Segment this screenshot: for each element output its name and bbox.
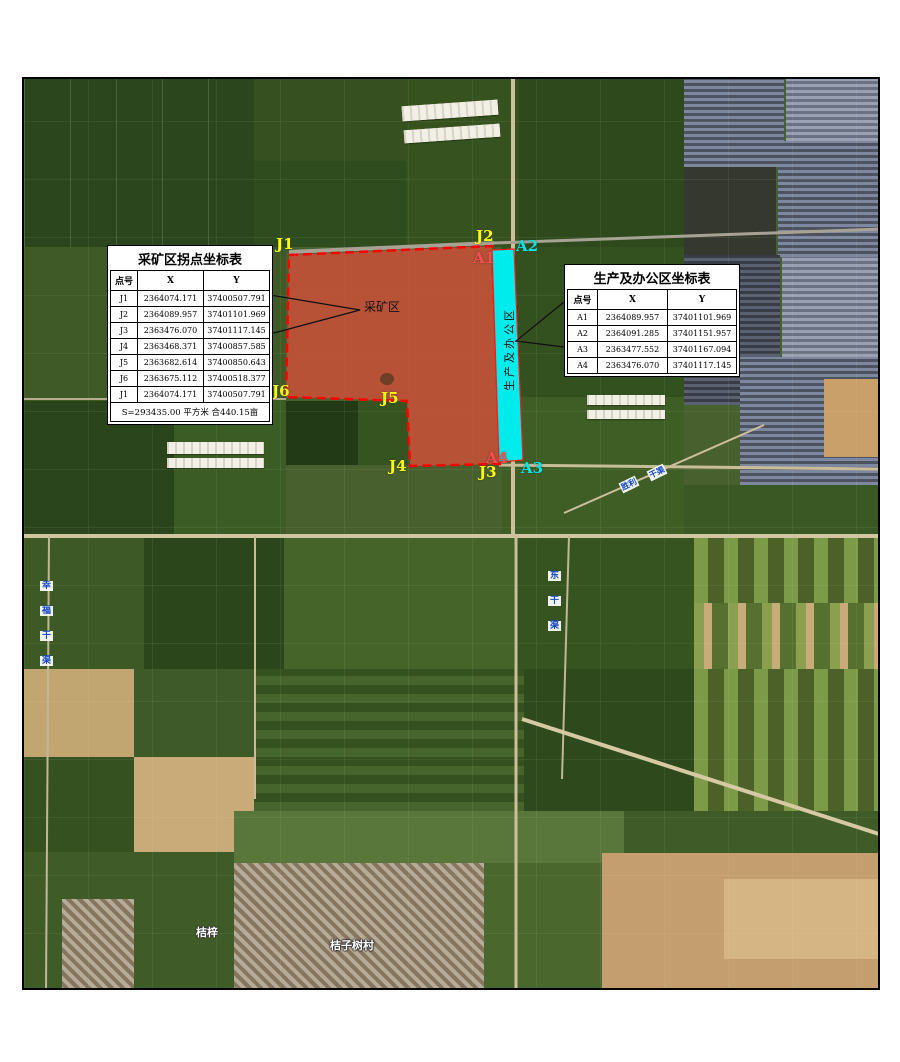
vertex-label-a1: A1 — [473, 251, 495, 266]
canal-label-west: 幸 福 干 渠 — [40, 581, 53, 681]
table-row: J32363476.07037401117.145 — [111, 323, 270, 339]
table-row: J62363675.11237400518.377 — [111, 371, 270, 387]
road-diagonal-south — [522, 719, 880, 835]
table-row: A22364091.28537401151.957 — [568, 326, 737, 342]
map-document-page: J1 J2 A2 A1 J6 J5 J4 J3 A4 A3 采矿区 生产及办公区… — [0, 0, 900, 1062]
coordinates-grid: 点号XY J12364074.17137400507.791J22364089.… — [110, 270, 270, 422]
vertex-label-j6: J6 — [272, 384, 290, 399]
table-cell: A1 — [568, 310, 598, 326]
office-coordinates-table: 生产及办公区坐标表 点号XY A12364089.95737401101.969… — [564, 264, 740, 377]
vertex-label-a4: A4 — [486, 451, 508, 466]
table-cell: 37400857.585 — [204, 339, 270, 355]
table-cell: 2364074.171 — [138, 291, 204, 307]
leader-line-office — [516, 302, 564, 347]
vertex-label-j3: J3 — [479, 465, 497, 480]
canal-label-char: 渠 — [548, 621, 561, 631]
vertex-label-j2: J2 — [476, 229, 494, 244]
table-cell: 37401167.094 — [668, 342, 737, 358]
table-row: A42363476.07037401117.145 — [568, 358, 737, 374]
table-cell: 37400507.791 — [204, 387, 270, 403]
table-row: J42363468.37137400857.585 — [111, 339, 270, 355]
table-row: J52363682.61437400850.643 — [111, 355, 270, 371]
column-header: Y — [668, 290, 737, 310]
canal-mid — [562, 536, 569, 779]
office-strip-label: 生产及办公区 — [501, 307, 517, 391]
table-cell: 37401117.145 — [668, 358, 737, 374]
canal-label-mid: 东 干 渠 — [548, 571, 561, 646]
table-row: J12364074.17137400507.791 — [111, 387, 270, 403]
table-cell: 2363468.371 — [138, 339, 204, 355]
table-cell: 2363476.070 — [138, 323, 204, 339]
table-cell: 37400850.643 — [204, 355, 270, 371]
table-row: A12364089.95737401101.969 — [568, 310, 737, 326]
vertex-label-a3: A3 — [521, 461, 543, 476]
table-title: 采矿区拐点坐标表 — [110, 247, 270, 270]
canal-label-char: 福 — [40, 606, 53, 616]
table-cell: 2363477.552 — [598, 342, 668, 358]
table-cell: 2364089.957 — [598, 310, 668, 326]
table-cell: J2 — [111, 307, 138, 323]
coordinates-grid: 点号XY A12364089.95737401101.969A22364091.… — [567, 289, 737, 374]
column-header: X — [598, 290, 668, 310]
table-cell: 37400518.377 — [204, 371, 270, 387]
header-row: 点号XY — [568, 290, 737, 310]
table-cell: J4 — [111, 339, 138, 355]
village-label-east: 桔子树村 — [330, 937, 374, 953]
table-cell: J6 — [111, 371, 138, 387]
table-cell: J1 — [111, 387, 138, 403]
column-header: X — [138, 271, 204, 291]
table-cell: J3 — [111, 323, 138, 339]
column-header: Y — [204, 271, 270, 291]
table-row: S=293435.00 平方米 合440.15亩 — [111, 403, 270, 422]
table-cell: 2364074.171 — [138, 387, 204, 403]
canal-label-char: 东 — [548, 571, 561, 581]
table-cell: A2 — [568, 326, 598, 342]
mining-area-label: 采矿区 — [364, 301, 400, 313]
table-cell: A3 — [568, 342, 598, 358]
table-row: A32363477.55237401167.094 — [568, 342, 737, 358]
table-cell: 37401151.957 — [668, 326, 737, 342]
vertex-label-j5: J5 — [381, 391, 399, 406]
mining-area-polygon — [286, 246, 500, 466]
vertex-label-a2: A2 — [516, 239, 538, 254]
column-header: 点号 — [568, 290, 598, 310]
table-cell: 37400507.791 — [204, 291, 270, 307]
table-cell: 2364091.285 — [598, 326, 668, 342]
table-cell: 2364089.957 — [138, 307, 204, 323]
table-cell: 37401101.969 — [668, 310, 737, 326]
village-label-west: 桔梓 — [196, 924, 218, 940]
table-cell: 37401101.969 — [204, 307, 270, 323]
canal-label-char: 干 — [40, 631, 53, 641]
mining-coordinates-table: 采矿区拐点坐标表 点号XY J12364074.17137400507.791J… — [107, 245, 273, 425]
table-cell: 2363476.070 — [598, 358, 668, 374]
table-title: 生产及办公区坐标表 — [567, 266, 737, 289]
table-cell: A4 — [568, 358, 598, 374]
canal-label-char: 渠 — [40, 656, 53, 666]
table-cell: 2363675.112 — [138, 371, 204, 387]
vertex-label-j1: J1 — [276, 237, 294, 252]
satellite-map: J1 J2 A2 A1 J6 J5 J4 J3 A4 A3 采矿区 生产及办公区… — [22, 77, 880, 990]
canal-label-char: 幸 — [40, 581, 53, 591]
column-header: 点号 — [111, 271, 138, 291]
table-footer: S=293435.00 平方米 合440.15亩 — [111, 403, 270, 422]
header-row: 点号XY — [111, 271, 270, 291]
canal-label-char: 干 — [548, 596, 561, 606]
table-cell: 2363682.614 — [138, 355, 204, 371]
vertex-label-j4: J4 — [389, 459, 407, 474]
table-row: J12364074.17137400507.791 — [111, 291, 270, 307]
table-cell: J1 — [111, 291, 138, 307]
road-northeast — [494, 229, 880, 243]
terrain-dark-spot — [380, 373, 394, 385]
road-along-south-boundary — [499, 465, 880, 469]
table-cell: 37401117.145 — [204, 323, 270, 339]
map-overlay-graphics — [24, 79, 880, 990]
table-cell: J5 — [111, 355, 138, 371]
table-row: J22364089.95737401101.969 — [111, 307, 270, 323]
